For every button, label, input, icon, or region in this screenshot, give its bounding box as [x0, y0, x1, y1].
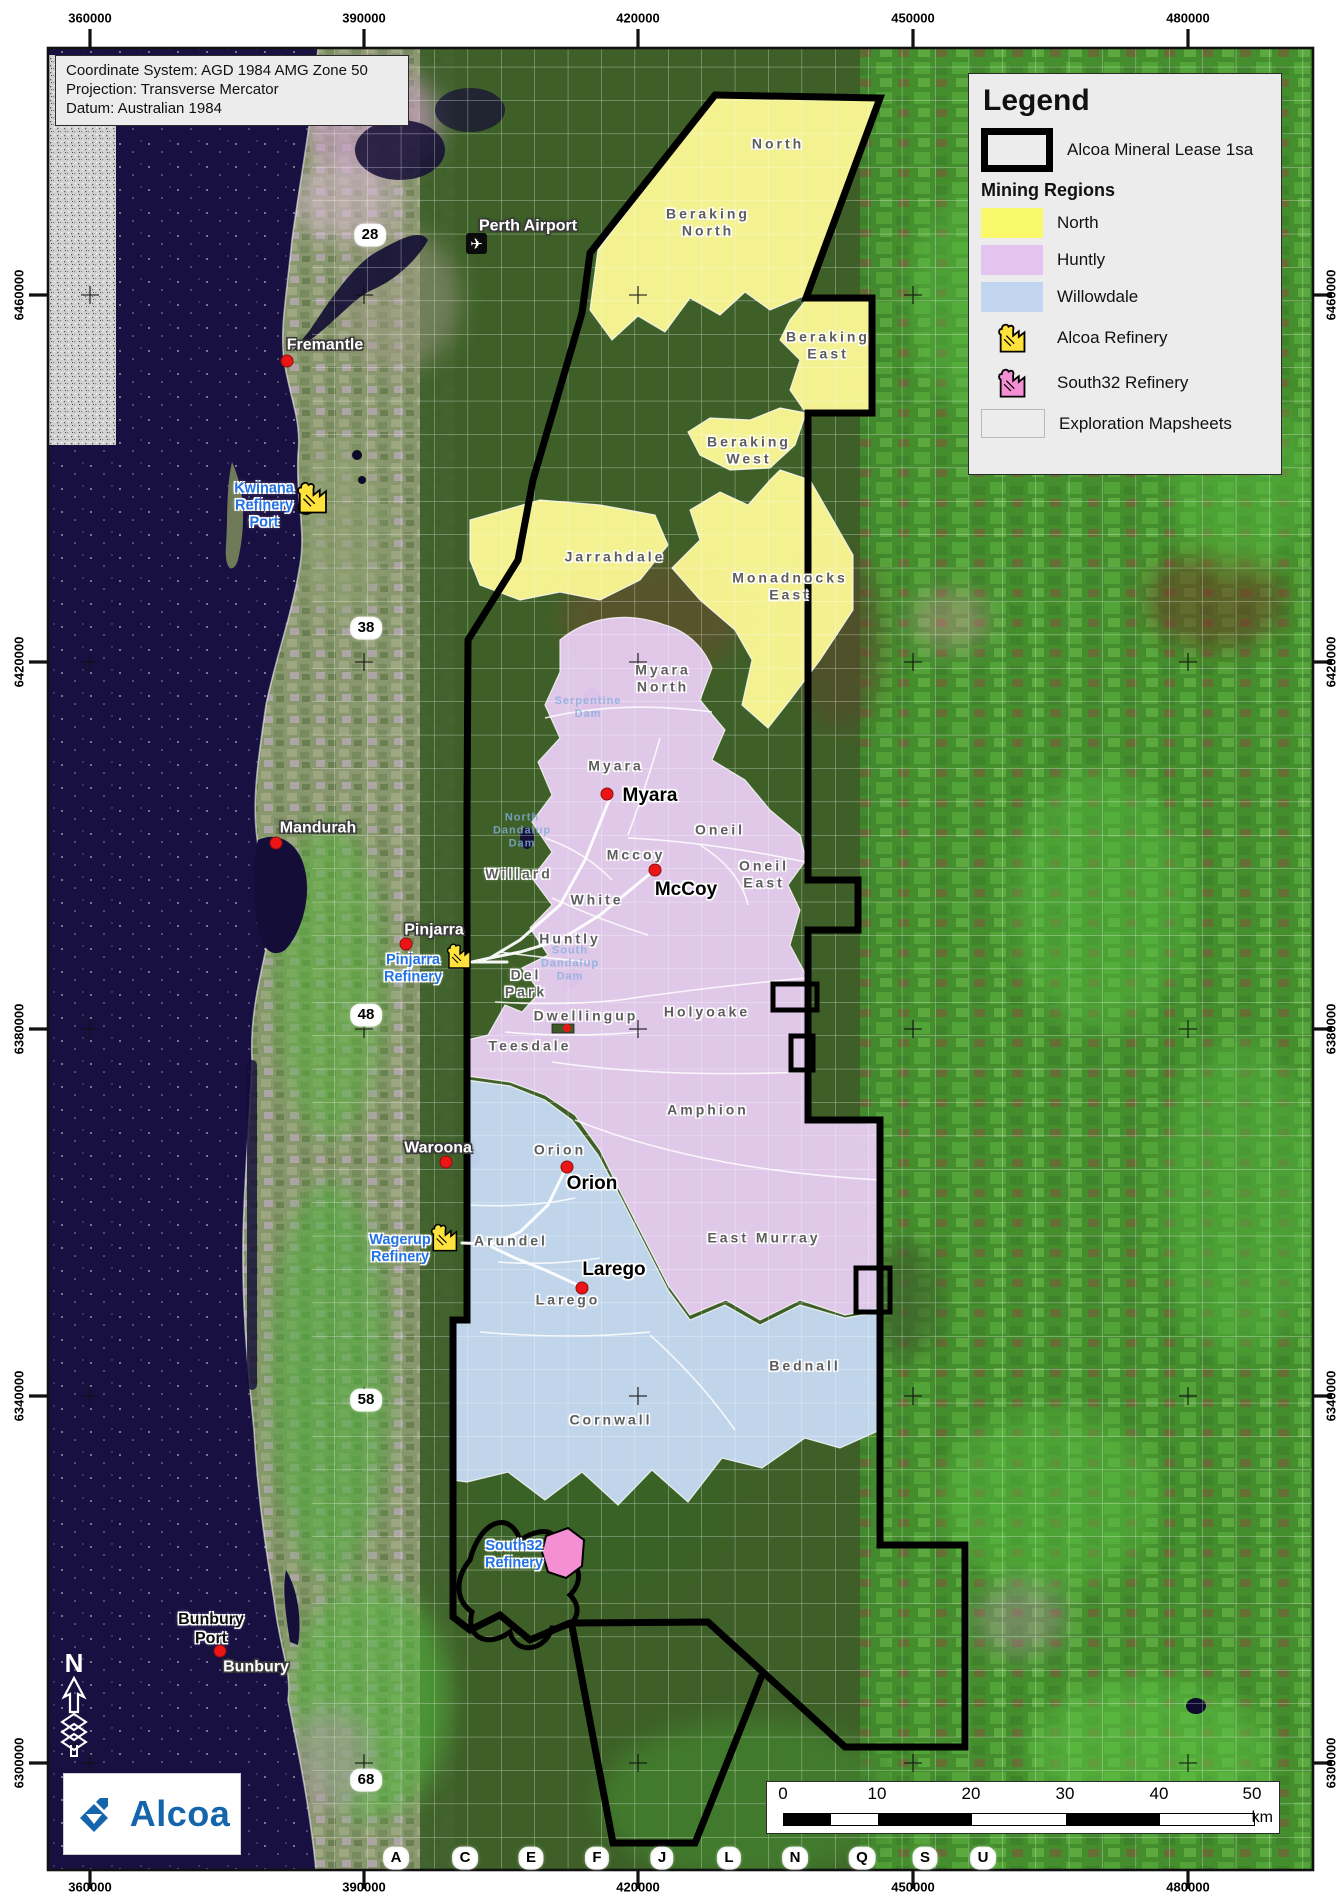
legend-panel: Legend Alcoa Mineral Lease 1sa Mining Re… [968, 73, 1282, 475]
scale-segment-4 [1066, 1814, 1160, 1825]
legend-item-south32-refinery: South32 Refinery [981, 364, 1281, 402]
legend-north-label: North [1057, 213, 1099, 233]
scale-segment-2 [878, 1814, 972, 1825]
scale-segment-0 [784, 1814, 831, 1825]
coordinate-system-line: Coordinate System: AGD 1984 AMG Zone 50 [66, 62, 398, 81]
scale-bar-unit: km [1252, 1809, 1273, 1827]
legend-alcoa-refinery-label: Alcoa Refinery [1057, 328, 1168, 348]
alcoa-logo-mark [74, 1792, 118, 1836]
scale-bar: 01020304050 km [766, 1781, 1280, 1834]
scale-segment-3 [972, 1814, 1066, 1825]
scale-tick-30: 30 [1056, 1784, 1075, 1804]
legend-exploration-mapsheets-label: Exploration Mapsheets [1059, 414, 1232, 434]
scale-tick-10: 10 [868, 1784, 887, 1804]
scale-segment-1 [831, 1814, 878, 1825]
legend-huntly-label: Huntly [1057, 250, 1105, 270]
exploration-mapsheets-swatch [981, 409, 1045, 438]
coordinate-info-box: Coordinate System: AGD 1984 AMG Zone 50 … [55, 55, 409, 126]
legend-item-willowdale: Willowdale [981, 282, 1281, 312]
alcoa-refinery-icon [981, 319, 1043, 357]
legend-item-exploration-mapsheets: Exploration Mapsheets [981, 409, 1281, 438]
legend-item-huntly: Huntly [981, 245, 1281, 275]
scale-tick-50: 50 [1243, 1784, 1262, 1804]
scale-segment-5 [1160, 1814, 1254, 1825]
legend-item-alcoa-refinery: Alcoa Refinery [981, 319, 1281, 357]
legend-title: Legend [983, 84, 1281, 118]
projection-line: Projection: Transverse Mercator [66, 81, 398, 100]
legend-south32-refinery-label: South32 Refinery [1057, 373, 1188, 393]
south32-refinery-icon [981, 364, 1043, 402]
svg-text:N: N [65, 1648, 84, 1678]
scale-tick-40: 40 [1150, 1784, 1169, 1804]
alcoa-logo-text: Alcoa [130, 1793, 231, 1835]
huntly-region-swatch [981, 245, 1043, 275]
airport-icon: ✈ [466, 233, 487, 254]
datum-line: Datum: Australian 1984 [66, 100, 398, 119]
scale-tick-20: 20 [962, 1784, 981, 1804]
legend-mining-regions-heading: Mining Regions [981, 180, 1281, 201]
willowdale-region-swatch [981, 282, 1043, 312]
legend-item-lease: Alcoa Mineral Lease 1sa [981, 128, 1281, 172]
legend-lease-label: Alcoa Mineral Lease 1sa [1067, 140, 1253, 160]
scale-tick-0: 0 [778, 1784, 787, 1804]
north-region-swatch [981, 208, 1043, 238]
map-document: ✈ N NorthBeraking NorthBeraking EastBera… [0, 0, 1344, 1900]
svg-text:✈: ✈ [470, 235, 483, 253]
dwellingup-mark [552, 1024, 574, 1033]
alcoa-logo: Alcoa [63, 1773, 241, 1855]
legend-willowdale-label: Willowdale [1057, 287, 1138, 307]
lease-outline-symbol [981, 128, 1053, 172]
scale-bar-segments [783, 1813, 1255, 1826]
legend-item-north: North [981, 208, 1281, 238]
